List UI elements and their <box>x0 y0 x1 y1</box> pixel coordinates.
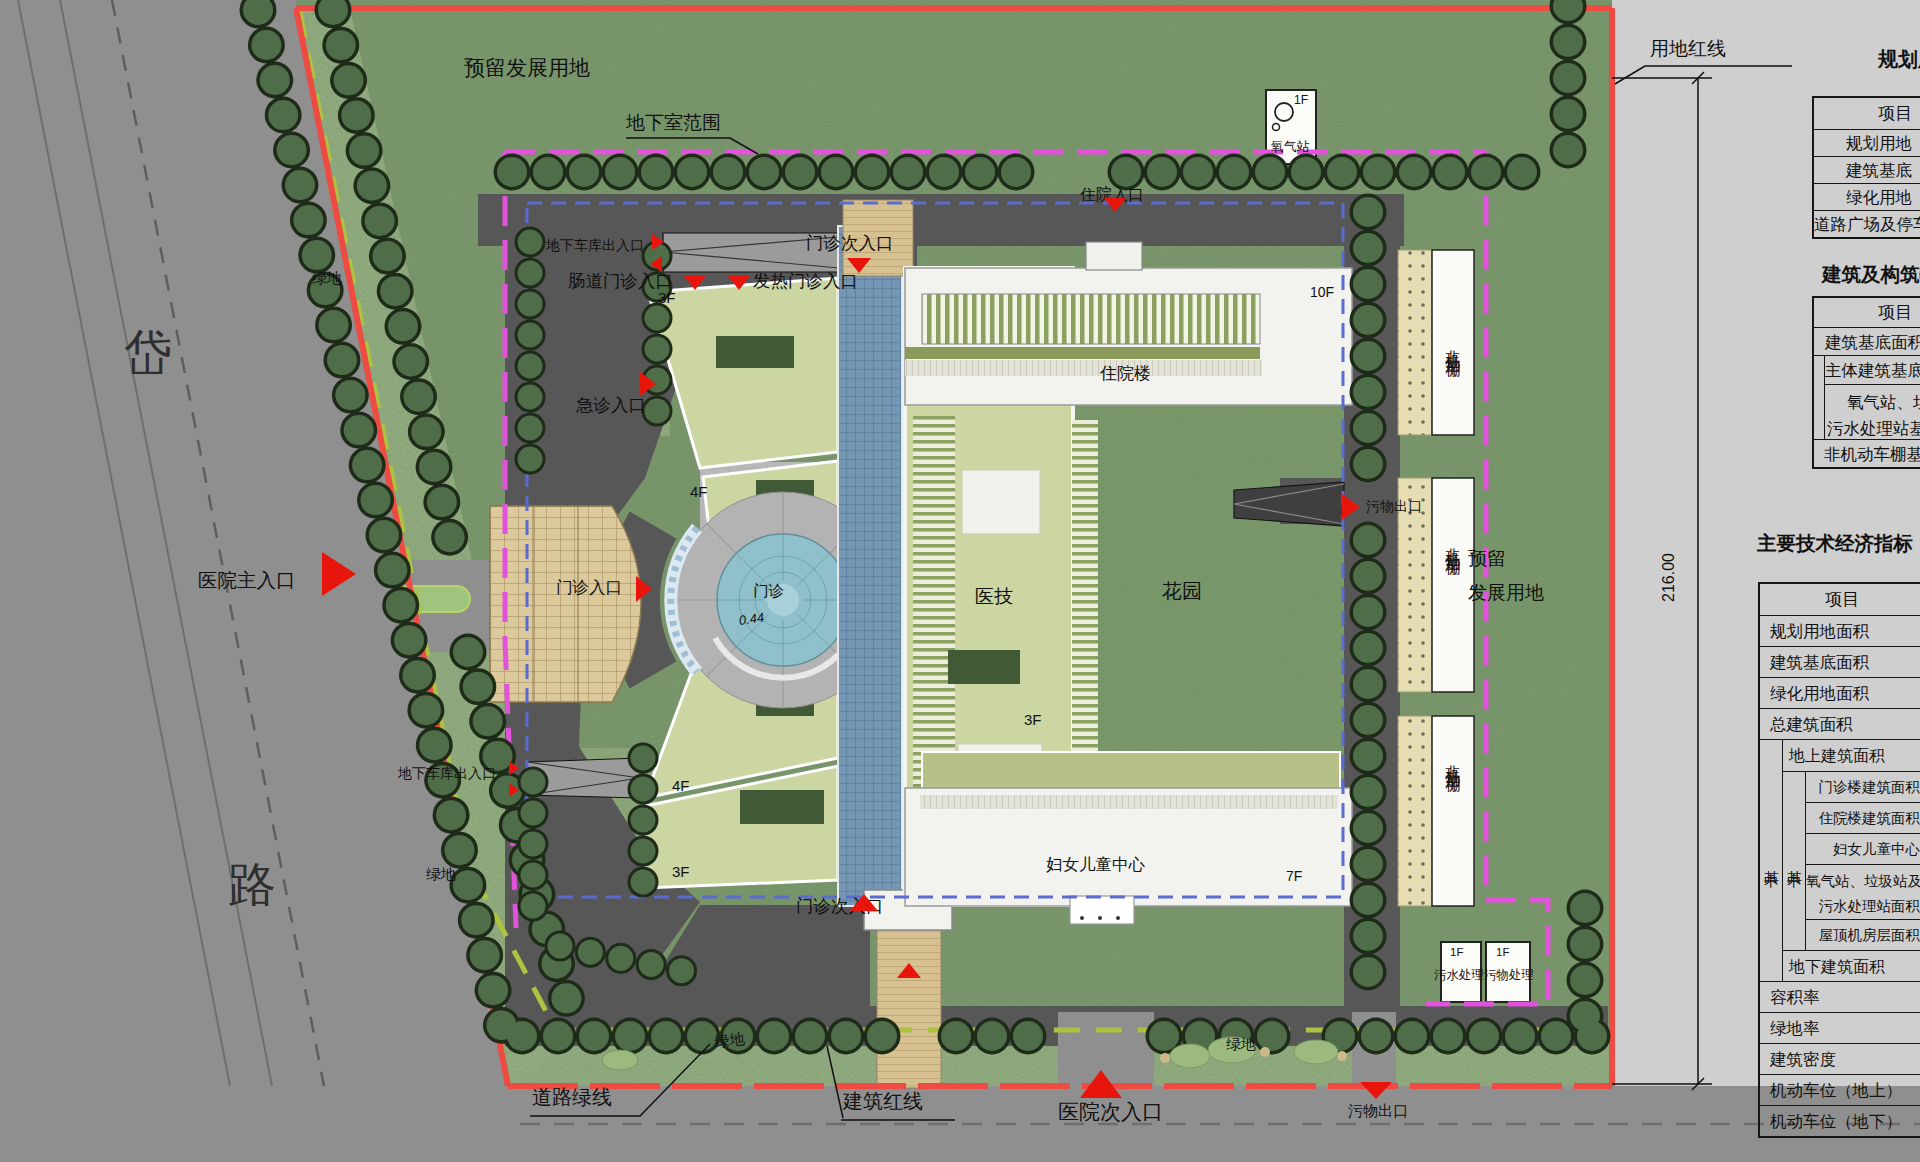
label-medtech-floors: 3F <box>1024 712 1042 729</box>
table-row: 道路广场及停车 <box>1814 210 1920 237</box>
table-row: 住院楼建筑面积 <box>1806 802 1920 833</box>
label-women-children-center: 妇女儿童中心 <box>1046 855 1145 873</box>
marker-garage-top-b <box>650 256 662 272</box>
qizhong-col-outer: 其中 <box>1760 740 1783 981</box>
label-wing-4f-top: 4F <box>690 484 708 501</box>
label-outpatient-entrance: 门诊入口 <box>556 578 622 596</box>
marker-hospital-secondary-entrance <box>1080 1070 1122 1098</box>
label-sewage-floors: 1F <box>1450 946 1463 959</box>
marker-outpatient-secondary-bottom <box>850 894 878 911</box>
table-row: 建筑密度 <box>1760 1043 1920 1074</box>
table-row: 容积率 <box>1760 981 1920 1012</box>
table-row: 规划用地面积 <box>1760 615 1920 646</box>
label-fever-clinic-entrance: 发热门诊入口 <box>753 272 858 292</box>
title-table-indicators: 主要技术经济指标 <box>1757 533 1913 555</box>
label-inpatient-floors: 10F <box>1310 285 1334 301</box>
table-row: 非机动车棚基底 <box>1814 439 1920 467</box>
site-plan-page: { "site_plan": { "colors": { "grass": "#… <box>0 0 1920 1162</box>
label-outpatient-secondary-entrance-top: 门诊次入口 <box>806 234 894 254</box>
label-outpatient-plaza: 门诊 <box>753 582 784 599</box>
label-road-green-line: 道路绿线 <box>532 1086 612 1108</box>
marker-fever-entrance <box>728 276 750 290</box>
label-green-west: 绿地 <box>312 270 342 287</box>
table-row: 建筑基底面积 <box>1814 327 1920 355</box>
label-green-south-2: 绿地 <box>1226 1036 1256 1053</box>
marker-garage-bottom-a <box>509 761 519 775</box>
table-row: 机动车位（地上） <box>1760 1074 1920 1105</box>
label-sewage-plant: 污水处理 <box>1434 968 1484 982</box>
table-row-two-line: 氧气站、垃圾站及 污水处理站面积 <box>1806 864 1920 919</box>
table-cell: 污水处理站面积 <box>1806 894 1920 919</box>
table-row-two-line: 氧气站、垃圾站及 污水处理站基底 <box>1825 384 1920 439</box>
table-header: 项目 <box>1814 298 1920 327</box>
label-reserved-land-top: 预留发展用地 <box>464 56 590 80</box>
label-road-name-2: 路 <box>228 858 276 912</box>
marker-inpatient-entrance <box>1104 198 1126 212</box>
label-wcc-floors: 7F <box>1286 869 1302 885</box>
table-row: 绿化用地面积 <box>1760 677 1920 708</box>
table-nested-group-inner: 其中 门诊楼建筑面积住院楼建筑面积妇女儿童中心 氧气站、垃圾站及 污水处理站面积… <box>1783 771 1920 950</box>
table-row: 地下建筑面积 <box>1783 950 1920 981</box>
marker-hospital-main-entrance <box>322 552 356 596</box>
table-row: 妇女儿童中心 <box>1806 833 1920 864</box>
qizhong-col-inner: 其中 <box>1783 771 1806 950</box>
label-basement-extent: 地下室范围 <box>626 112 721 133</box>
nested-spacer-col <box>1814 356 1825 439</box>
table-cell: 氧气站、垃圾站及 <box>1806 869 1920 894</box>
table-land-balance: 项目 规划用地建筑基底绿化用地道路广场及停车 <box>1812 96 1920 239</box>
table-row: 建筑基底 <box>1814 156 1920 183</box>
table-cell: 污水处理站基底 <box>1825 415 1920 441</box>
table-row: 门诊楼建筑面积 <box>1806 771 1920 802</box>
label-hospital-secondary-entrance: 医院次入口 <box>1058 1100 1163 1124</box>
label-reserved-land-east-1: 预留 <box>1468 548 1506 569</box>
label-reserved-land-east-2: 发展用地 <box>1468 582 1544 603</box>
label-garage-entrance-top: 地下车库出入口 <box>546 238 644 254</box>
label-bike-shed-3: 非机动车棚 <box>1444 753 1461 768</box>
title-table-land-balance: 规划用地 <box>1878 48 1920 70</box>
label-land-red-line: 用地红线 <box>1650 38 1726 59</box>
label-road-name-1: 岱 <box>124 326 172 380</box>
table-row: 建筑基底面积 <box>1760 646 1920 677</box>
marker-walkway <box>897 963 921 978</box>
marker-outpatient-entrance <box>636 576 652 602</box>
table-row: 地上建筑面积 <box>1783 740 1920 771</box>
label-dimension: 216.00 <box>1660 553 1678 602</box>
label-wing-3f-bottom: 3F <box>672 864 690 881</box>
qizhong-label: 其中 <box>1762 858 1781 864</box>
label-garden: 花园 <box>1162 580 1202 602</box>
marker-waste-exit-east <box>1342 494 1360 520</box>
marker-outpatient-secondary-top <box>847 258 871 273</box>
qizhong-label: 其中 <box>1785 858 1804 864</box>
label-waste-floors: 1F <box>1496 946 1509 959</box>
label-medtech-building: 医技 <box>975 586 1013 607</box>
label-building-red-line: 建筑红线 <box>843 1090 923 1112</box>
table-row: 机动车位（地下） <box>1760 1105 1920 1136</box>
table-row: 规划用地 <box>1814 129 1920 156</box>
marker-garage-bottom-b <box>509 783 519 797</box>
table-row: 绿化用地 <box>1814 183 1920 210</box>
title-table-structures: 建筑及构筑物 <box>1822 264 1920 286</box>
label-emergency-entrance: 急诊入口 <box>576 396 646 416</box>
table-nested-group: 主体建筑基底 氧气站、垃圾站及 污水处理站基底 <box>1814 355 1920 439</box>
table-row: 屋顶机房层面积 <box>1806 919 1920 950</box>
marker-emergency-entrance <box>640 372 656 396</box>
label-elevation: 0.44 <box>738 610 765 628</box>
table-row: 主体建筑基底 <box>1825 356 1920 384</box>
label-oxygen-station: 氧气站 <box>1271 140 1310 155</box>
marker-intestinal-entrance <box>684 276 706 290</box>
label-waste-exit-east: 污物出口 <box>1366 499 1422 515</box>
label-waste-exit-south: 污物出口 <box>1348 1103 1408 1120</box>
table-structures: 项目 建筑基底面积 主体建筑基底 氧气站、垃圾站及 污水处理站基底 非机动车棚基… <box>1812 296 1920 469</box>
label-oxygen-floors: 1F <box>1294 94 1308 107</box>
label-green-southwest: 绿地 <box>426 866 456 883</box>
label-bike-shed-1: 非机动车棚 <box>1444 338 1461 353</box>
label-wing-3f-top: 3F <box>658 290 676 307</box>
marker-waste-exit-south <box>1360 1082 1392 1099</box>
label-inpatient-building: 住院楼 <box>1100 364 1151 383</box>
label-hospital-main-entrance: 医院主入口 <box>198 570 296 592</box>
label-waste-plant: 污物处理 <box>1484 968 1534 982</box>
label-garage-entrance-bottom: 地下车库出入口 <box>398 766 496 782</box>
label-wing-4f-bottom: 4F <box>672 778 690 795</box>
table-row: 总建筑面积 <box>1760 708 1920 739</box>
label-green-south-1: 绿地 <box>714 1031 746 1051</box>
table-header: 项目 <box>1814 98 1920 129</box>
table-cell: 氧气站、垃圾站及 <box>1825 389 1920 415</box>
label-bike-shed-2: 非机动车棚 <box>1444 536 1461 551</box>
table-header: 项目 <box>1760 584 1920 615</box>
plan-annotations: 预留发展用地地下室范围用地红线规划用地建筑及构筑物主要技术经济指标氧气站1F住院… <box>0 0 1920 1162</box>
table-row: 绿地率 <box>1760 1012 1920 1043</box>
table-nested-group: 其中 地上建筑面积 其中 门诊楼建筑面积住院楼建筑面积妇女儿童中心 氧气站、垃圾… <box>1760 739 1920 981</box>
table-indicators: 项目 规划用地面积建筑基底面积绿化用地面积总建筑面积 其中 地上建筑面积 其中 … <box>1758 582 1920 1138</box>
marker-garage-top-a <box>652 234 664 250</box>
